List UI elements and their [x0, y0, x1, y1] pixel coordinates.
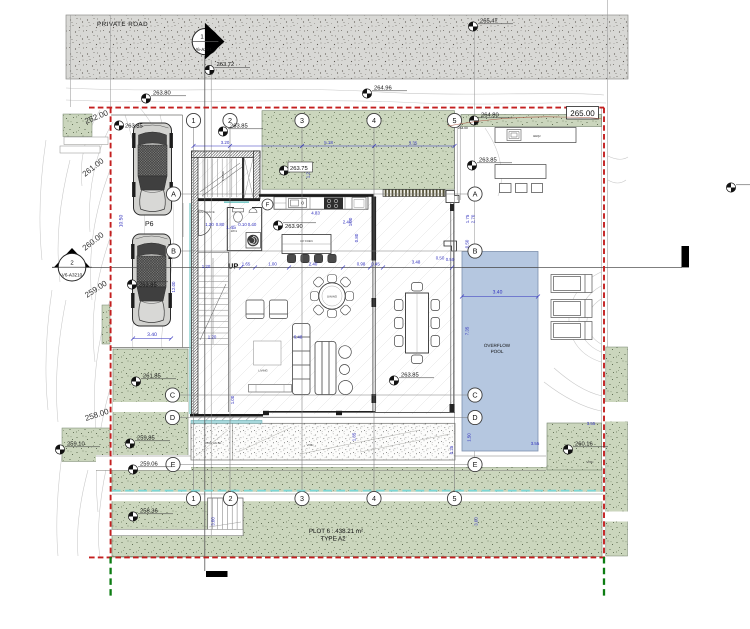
svg-text:1.00: 1.00 [230, 395, 235, 404]
svg-text:1.65: 1.65 [242, 262, 251, 267]
svg-text:1.20: 1.20 [205, 222, 214, 227]
svg-text:0.80: 0.80 [216, 222, 225, 227]
svg-text:POOL AN.SK: POOL AN.SK [205, 441, 222, 445]
svg-text:261.85: 261.85 [143, 373, 161, 380]
svg-text:263.72: 263.72 [217, 61, 235, 68]
svg-text:A: A [171, 190, 176, 199]
svg-text:5: 5 [453, 116, 457, 125]
svg-text:3.55: 3.55 [587, 421, 596, 426]
svg-text:0.98: 0.98 [357, 262, 366, 267]
svg-text:1: 1 [192, 494, 196, 503]
svg-text:263.75: 263.75 [290, 165, 308, 172]
svg-text:5: 5 [453, 494, 457, 503]
svg-text:263.85: 263.85 [401, 372, 419, 379]
svg-text:263.80: 263.80 [153, 90, 171, 97]
svg-text:3.55: 3.55 [531, 441, 540, 446]
svg-text:C: C [170, 391, 175, 400]
svg-text:VOID: VOID [587, 460, 594, 464]
svg-text:1.75: 1.75 [465, 214, 470, 223]
svg-text:LIVING: LIVING [258, 369, 267, 373]
svg-text:3.20: 3.20 [221, 140, 230, 145]
svg-text:0.40: 0.40 [248, 222, 257, 227]
svg-text:10.50: 10.50 [119, 215, 125, 228]
svg-text:259.06: 259.06 [140, 461, 158, 468]
svg-text:3.35: 3.35 [409, 141, 418, 146]
svg-text:263.90: 263.90 [285, 223, 303, 230]
svg-text:0.25: 0.25 [449, 445, 454, 454]
svg-text:1.00: 1.00 [268, 262, 277, 267]
svg-text:1.00: 1.00 [348, 217, 353, 226]
svg-text:E: E [171, 460, 176, 469]
svg-text:VOID: VOID [307, 443, 314, 447]
svg-text:0.80: 0.80 [354, 233, 359, 242]
svg-text:3.00: 3.00 [211, 517, 216, 526]
svg-text:3: 3 [300, 494, 304, 503]
svg-text:BBQ2: BBQ2 [533, 134, 541, 138]
svg-text:PLOT 6 : 438.21 m²: PLOT 6 : 438.21 m² [309, 528, 363, 535]
svg-text:1: 1 [192, 116, 196, 125]
svg-text:6.48: 6.48 [294, 335, 303, 340]
svg-text:DINING: DINING [327, 295, 337, 299]
svg-text:S.KASE: S.KASE [221, 171, 225, 181]
svg-text:OVERFLOW: OVERFLOW [484, 343, 511, 348]
svg-text:0.50: 0.50 [436, 256, 445, 261]
svg-text:264.80: 264.80 [481, 112, 499, 119]
svg-text:2: 2 [229, 494, 233, 503]
svg-text:D: D [170, 413, 175, 422]
svg-text:259.10: 259.10 [67, 441, 85, 448]
svg-text:P6: P6 [145, 221, 154, 228]
svg-text:263.85: 263.85 [125, 123, 143, 130]
svg-text:5.18: 5.18 [324, 140, 333, 145]
svg-text:265.47: 265.47 [480, 18, 498, 25]
svg-text:POOL: POOL [491, 349, 504, 354]
svg-text:UP: UP [228, 262, 238, 271]
svg-text:2.70: 2.70 [471, 214, 476, 223]
svg-text:V6-A321: V6-A321 [194, 47, 212, 52]
svg-text:0.50: 0.50 [465, 239, 470, 248]
svg-text:7.35: 7.35 [465, 326, 470, 335]
svg-text:1.50: 1.50 [467, 433, 472, 442]
svg-text:E: E [473, 460, 478, 469]
svg-text:264.96: 264.96 [374, 85, 392, 92]
svg-text:3.48: 3.48 [412, 260, 421, 265]
svg-text:263.85: 263.85 [230, 123, 248, 130]
svg-text:259.85: 259.85 [137, 435, 155, 442]
svg-text:0.45: 0.45 [371, 262, 380, 267]
svg-text:263.85: 263.85 [479, 157, 497, 164]
svg-text:2.40: 2.40 [309, 262, 318, 267]
svg-text:V6-A3210: V6-A3210 [62, 273, 83, 278]
svg-text:1.20: 1.20 [202, 264, 211, 269]
svg-text:1.85: 1.85 [352, 432, 357, 441]
svg-text:C: C [472, 391, 477, 400]
svg-text:12.00: 12.00 [171, 281, 176, 293]
svg-text:TYPE A2: TYPE A2 [320, 536, 346, 543]
svg-text:3: 3 [300, 116, 304, 125]
svg-text:F: F [266, 202, 270, 209]
svg-text:260.16: 260.16 [575, 441, 593, 448]
svg-text:265.00: 265.00 [570, 109, 595, 118]
svg-text:1.45: 1.45 [226, 225, 236, 231]
svg-text:3.00: 3.00 [474, 517, 479, 526]
svg-text:D: D [472, 413, 477, 422]
svg-text:264.00: 264.00 [458, 126, 468, 130]
svg-text:3.40: 3.40 [147, 332, 157, 338]
svg-text:1.20: 1.20 [208, 335, 217, 340]
svg-text:0.10: 0.10 [238, 222, 247, 227]
svg-text:4: 4 [372, 116, 376, 125]
svg-text:263.85: 263.85 [139, 282, 157, 289]
svg-text:4: 4 [372, 494, 376, 503]
svg-text:3.40: 3.40 [493, 290, 503, 296]
svg-text:A: A [473, 190, 478, 199]
svg-text:ENTRANCE: ENTRANCE [199, 210, 215, 214]
svg-text:0.50: 0.50 [446, 257, 455, 262]
svg-text:B: B [171, 247, 176, 256]
svg-text:B: B [473, 247, 478, 256]
svg-text:PRIVATE ROAD: PRIVATE ROAD [97, 21, 148, 28]
svg-text:4.83: 4.83 [311, 211, 320, 216]
svg-text:258.36: 258.36 [140, 508, 158, 515]
